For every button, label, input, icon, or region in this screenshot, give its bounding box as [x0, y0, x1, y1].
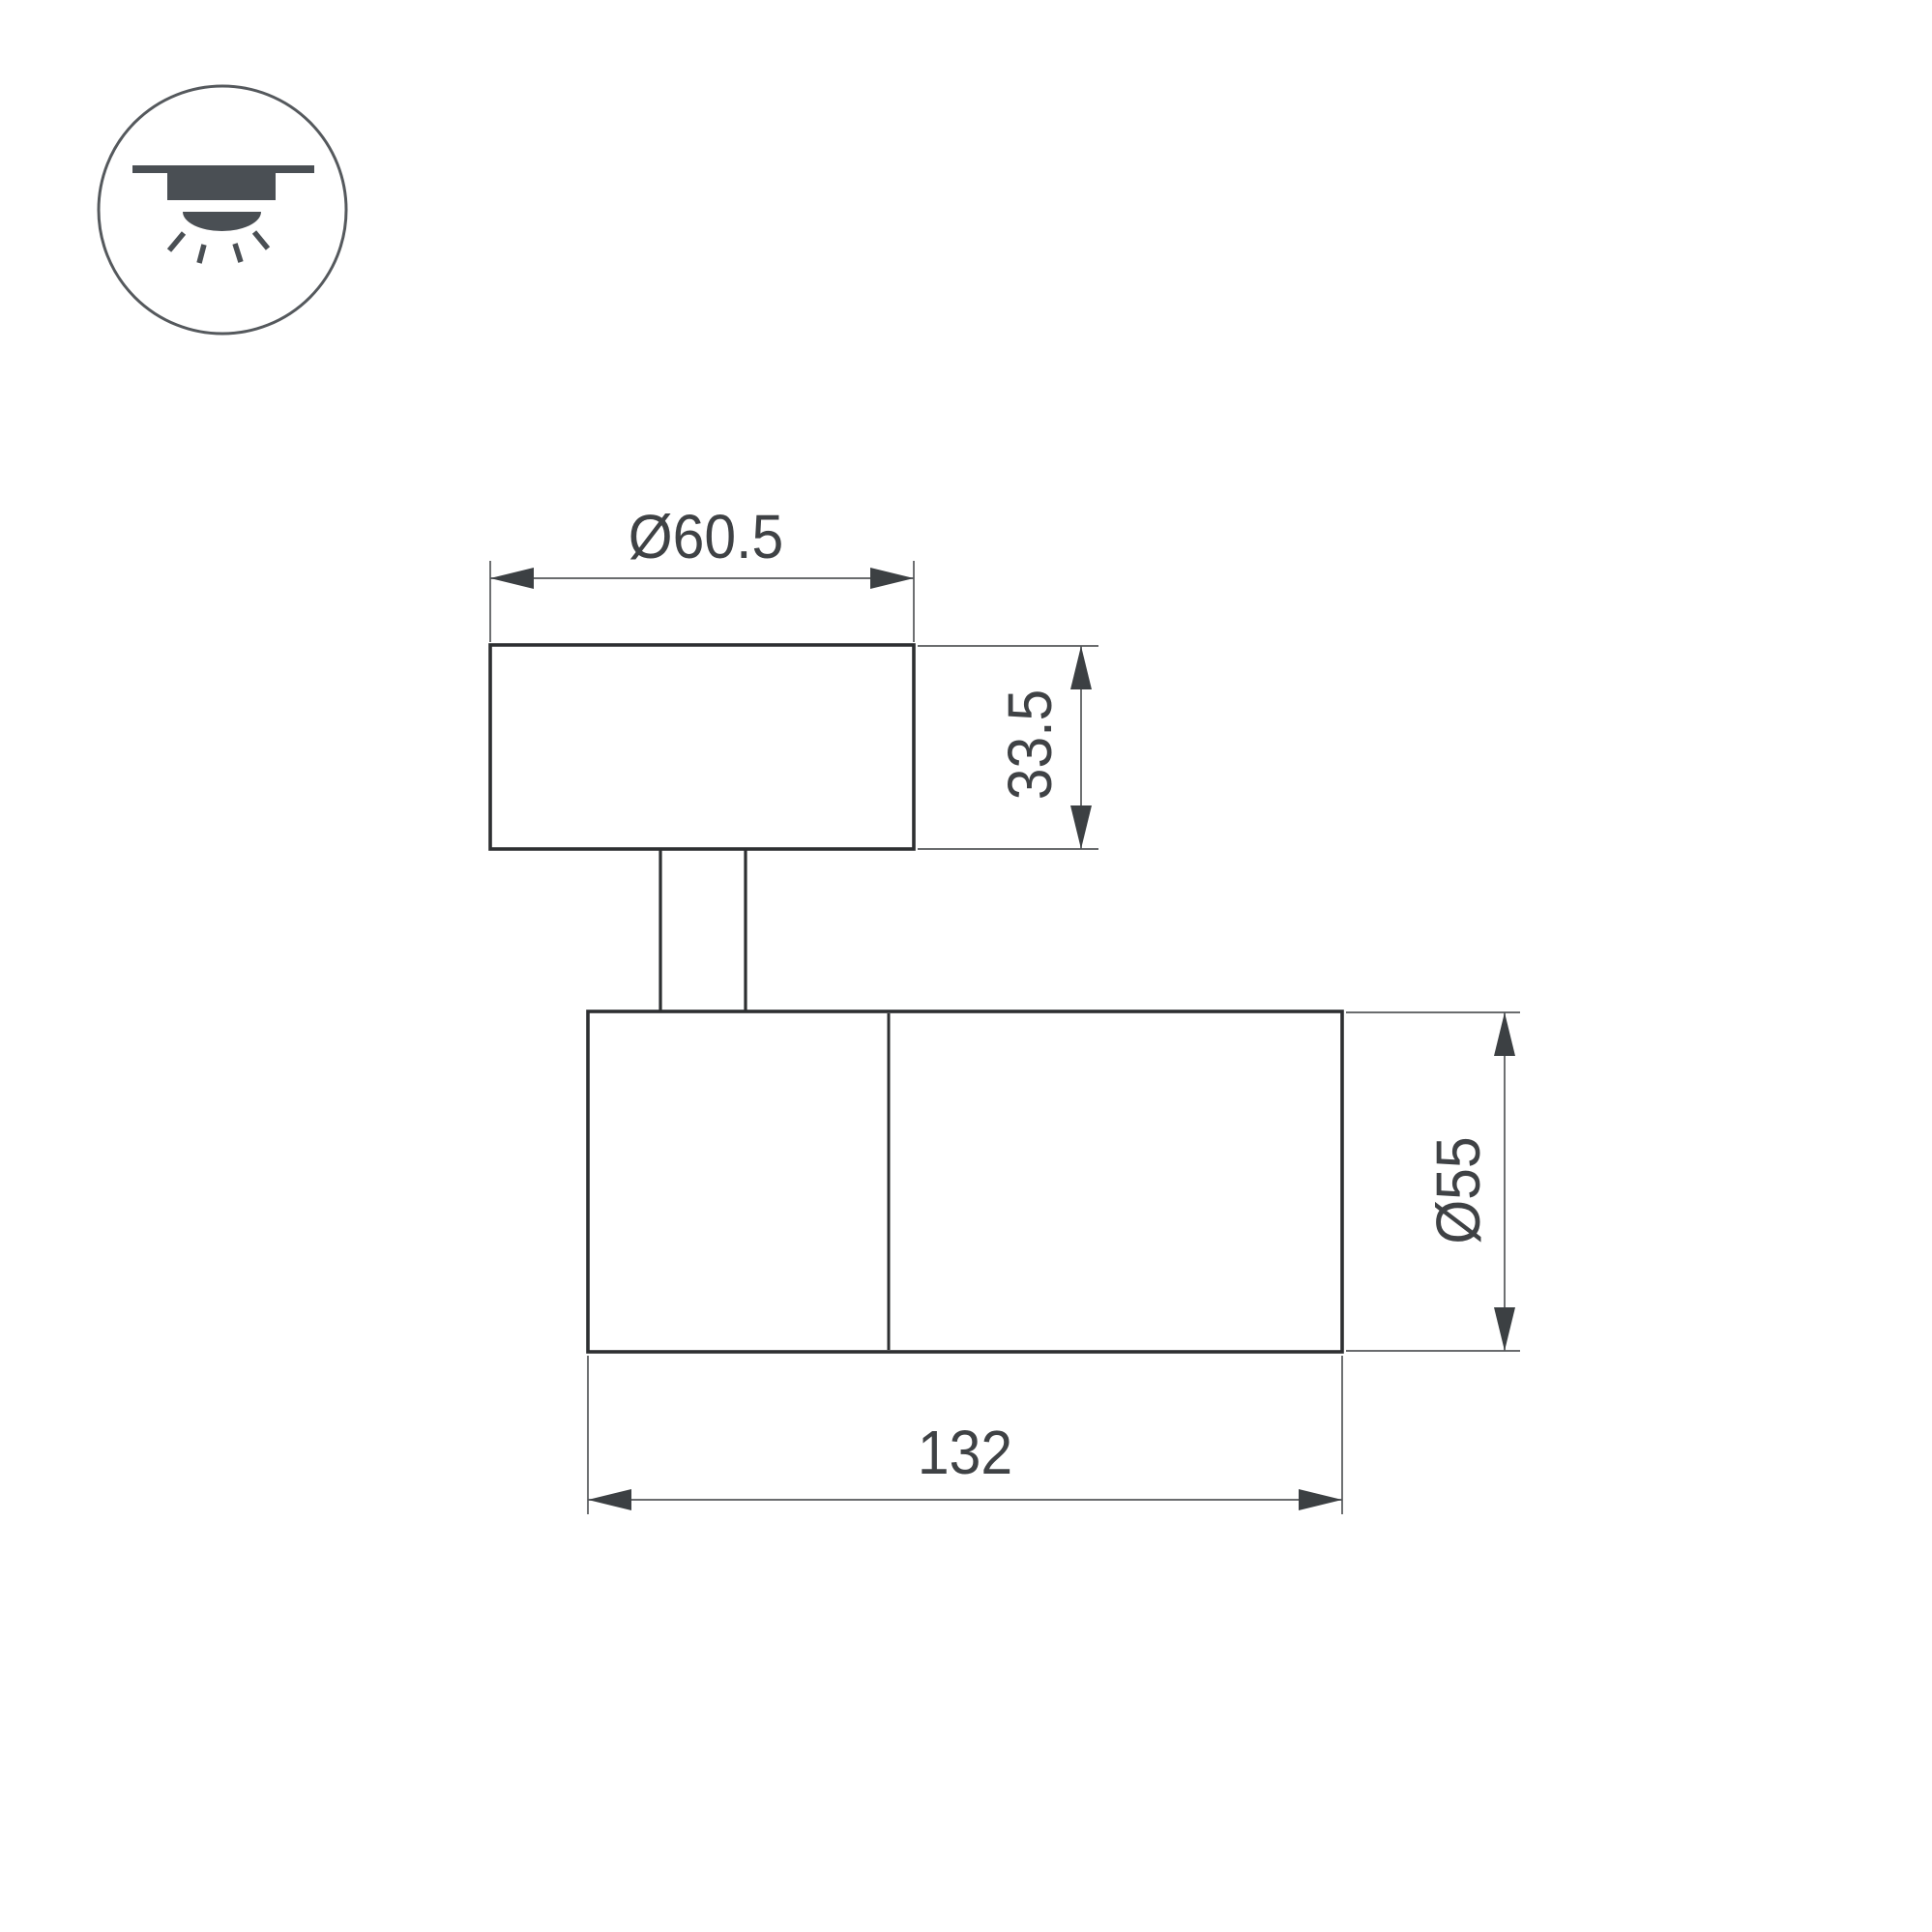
lens-dome — [183, 212, 261, 231]
light-ray-icon — [199, 245, 204, 263]
arrow-down-icon — [1070, 805, 1092, 849]
dim-base-height-label: 33.5 — [996, 689, 1066, 801]
arrow-right-icon — [870, 568, 914, 589]
luminaire-outline — [490, 645, 1342, 1352]
dim-body-diameter: Ø55 — [1346, 1012, 1520, 1351]
arrow-left-icon — [490, 568, 534, 589]
base-canopy-outline — [490, 645, 914, 849]
light-ray-icon — [169, 233, 184, 250]
light-ray-icon — [235, 244, 241, 262]
dim-base-diameter-label: Ø60.5 — [629, 503, 783, 572]
dimension-drawing-page: Ø60.5 33.5 Ø55 132 — [0, 0, 1932, 1932]
luminaire-dimension-drawing: Ø60.5 33.5 Ø55 132 — [0, 0, 1932, 1932]
dim-body-length: 132 — [588, 1356, 1342, 1514]
light-ray-icon — [254, 232, 268, 249]
dim-base-height: 33.5 — [918, 646, 1098, 849]
fixture-housing — [167, 171, 276, 200]
spot-body-outline — [588, 1011, 1342, 1352]
dim-base-diameter: Ø60.5 — [490, 503, 914, 642]
arrow-up-icon — [1070, 646, 1092, 689]
arrow-right-icon — [1299, 1489, 1342, 1510]
icon-circle — [99, 86, 346, 334]
dim-body-length-label: 132 — [918, 1419, 1012, 1488]
arrow-down-icon — [1494, 1307, 1515, 1351]
arrow-up-icon — [1494, 1012, 1515, 1056]
dim-body-diameter-label: Ø55 — [1424, 1136, 1494, 1244]
mount-type-icon — [99, 86, 346, 334]
arrow-left-icon — [588, 1489, 631, 1510]
